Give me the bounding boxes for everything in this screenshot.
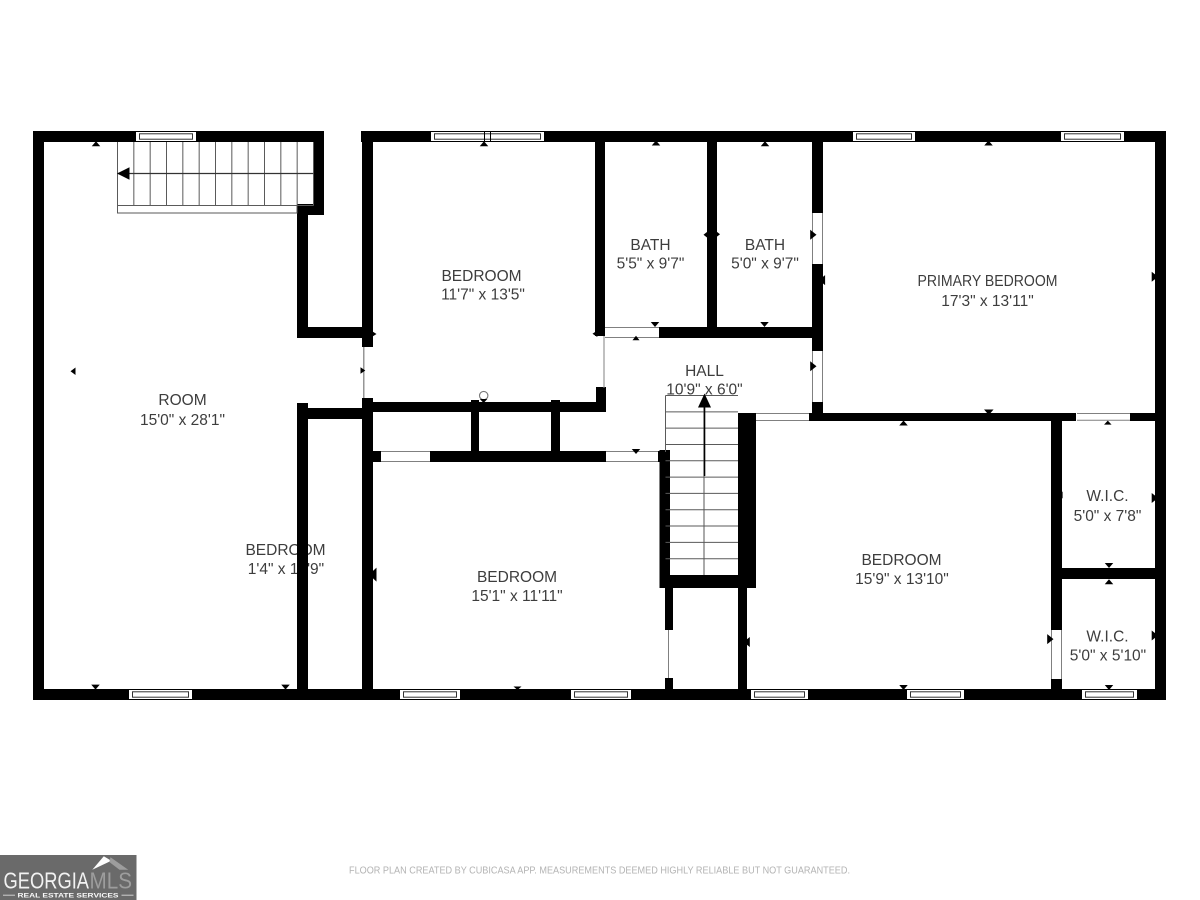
- svg-text:BEDROOM: BEDROOM: [441, 268, 521, 285]
- svg-text:REAL ESTATE SERVICES: REAL ESTATE SERVICES: [18, 892, 120, 899]
- svg-text:5'0" x 9'7": 5'0" x 9'7": [731, 256, 799, 273]
- svg-text:HALL: HALL: [685, 363, 724, 380]
- svg-text:1'4" x 17'9": 1'4" x 17'9": [248, 561, 324, 578]
- svg-text:BEDROOM: BEDROOM: [477, 569, 557, 586]
- svg-text:17'3" x 13'11": 17'3" x 13'11": [941, 293, 1033, 310]
- svg-text:BATH: BATH: [745, 237, 785, 254]
- svg-text:FLOOR PLAN CREATED BY CUBICASA: FLOOR PLAN CREATED BY CUBICASA APP. MEAS…: [349, 865, 850, 877]
- svg-text:BEDROOM: BEDROOM: [861, 552, 941, 569]
- svg-text:PRIMARY BEDROOM: PRIMARY BEDROOM: [918, 273, 1058, 290]
- svg-text:MLS: MLS: [90, 868, 133, 894]
- svg-text:GEORGIA: GEORGIA: [4, 868, 90, 894]
- svg-text:BATH: BATH: [630, 237, 670, 254]
- svg-text:5'5" x 9'7": 5'5" x 9'7": [617, 256, 685, 273]
- svg-text:15'1" x 11'11": 15'1" x 11'11": [471, 588, 562, 605]
- svg-text:BEDROOM: BEDROOM: [245, 542, 325, 559]
- svg-text:ROOM: ROOM: [158, 392, 206, 409]
- svg-text:W.I.C.: W.I.C.: [1086, 488, 1128, 505]
- svg-text:15'9" x 13'10": 15'9" x 13'10": [855, 571, 949, 588]
- svg-text:W.I.C.: W.I.C.: [1086, 629, 1128, 646]
- svg-text:15'0" x 28'1": 15'0" x 28'1": [140, 412, 225, 429]
- svg-text:11'7" x 13'5": 11'7" x 13'5": [441, 287, 525, 304]
- svg-text:5'0" x 5'10": 5'0" x 5'10": [1070, 648, 1146, 665]
- svg-text:5'0" x 7'8": 5'0" x 7'8": [1074, 508, 1142, 525]
